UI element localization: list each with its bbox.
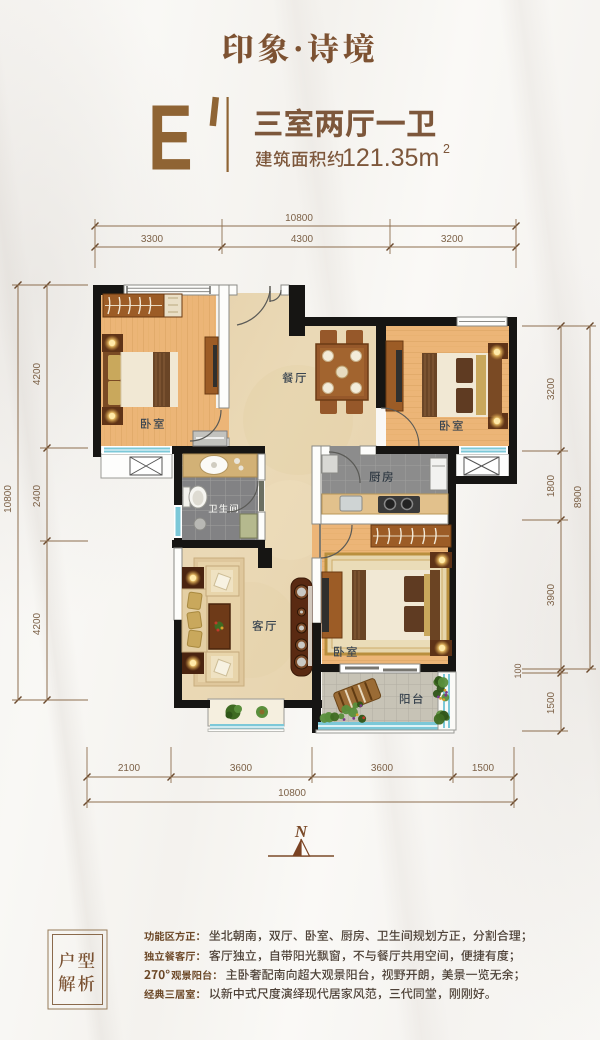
svg-text:2: 2	[443, 142, 450, 156]
svg-text:8900: 8900	[573, 485, 584, 508]
svg-text:4200: 4200	[32, 362, 43, 385]
svg-text:1500: 1500	[472, 763, 495, 774]
svg-text:2400: 2400	[32, 484, 43, 507]
svg-text:3200: 3200	[441, 234, 464, 245]
svg-text:10800: 10800	[278, 788, 306, 799]
svg-text:2100: 2100	[118, 763, 141, 774]
svg-text:3300: 3300	[141, 234, 164, 245]
svg-text:3600: 3600	[371, 763, 394, 774]
svg-text:10800: 10800	[3, 485, 14, 513]
svg-text:4300: 4300	[291, 234, 314, 245]
svg-text:E: E	[148, 87, 193, 190]
svg-text:3900: 3900	[546, 583, 557, 606]
svg-text:4200: 4200	[32, 612, 43, 635]
svg-text:100: 100	[513, 663, 523, 678]
svg-text:121.35m: 121.35m	[342, 144, 439, 172]
svg-text:N: N	[294, 822, 308, 841]
svg-text:3200: 3200	[546, 377, 557, 400]
svg-text:3600: 3600	[230, 763, 253, 774]
svg-text:1500: 1500	[546, 691, 557, 714]
svg-text:10800: 10800	[285, 213, 313, 224]
svg-text:1800: 1800	[546, 474, 557, 497]
